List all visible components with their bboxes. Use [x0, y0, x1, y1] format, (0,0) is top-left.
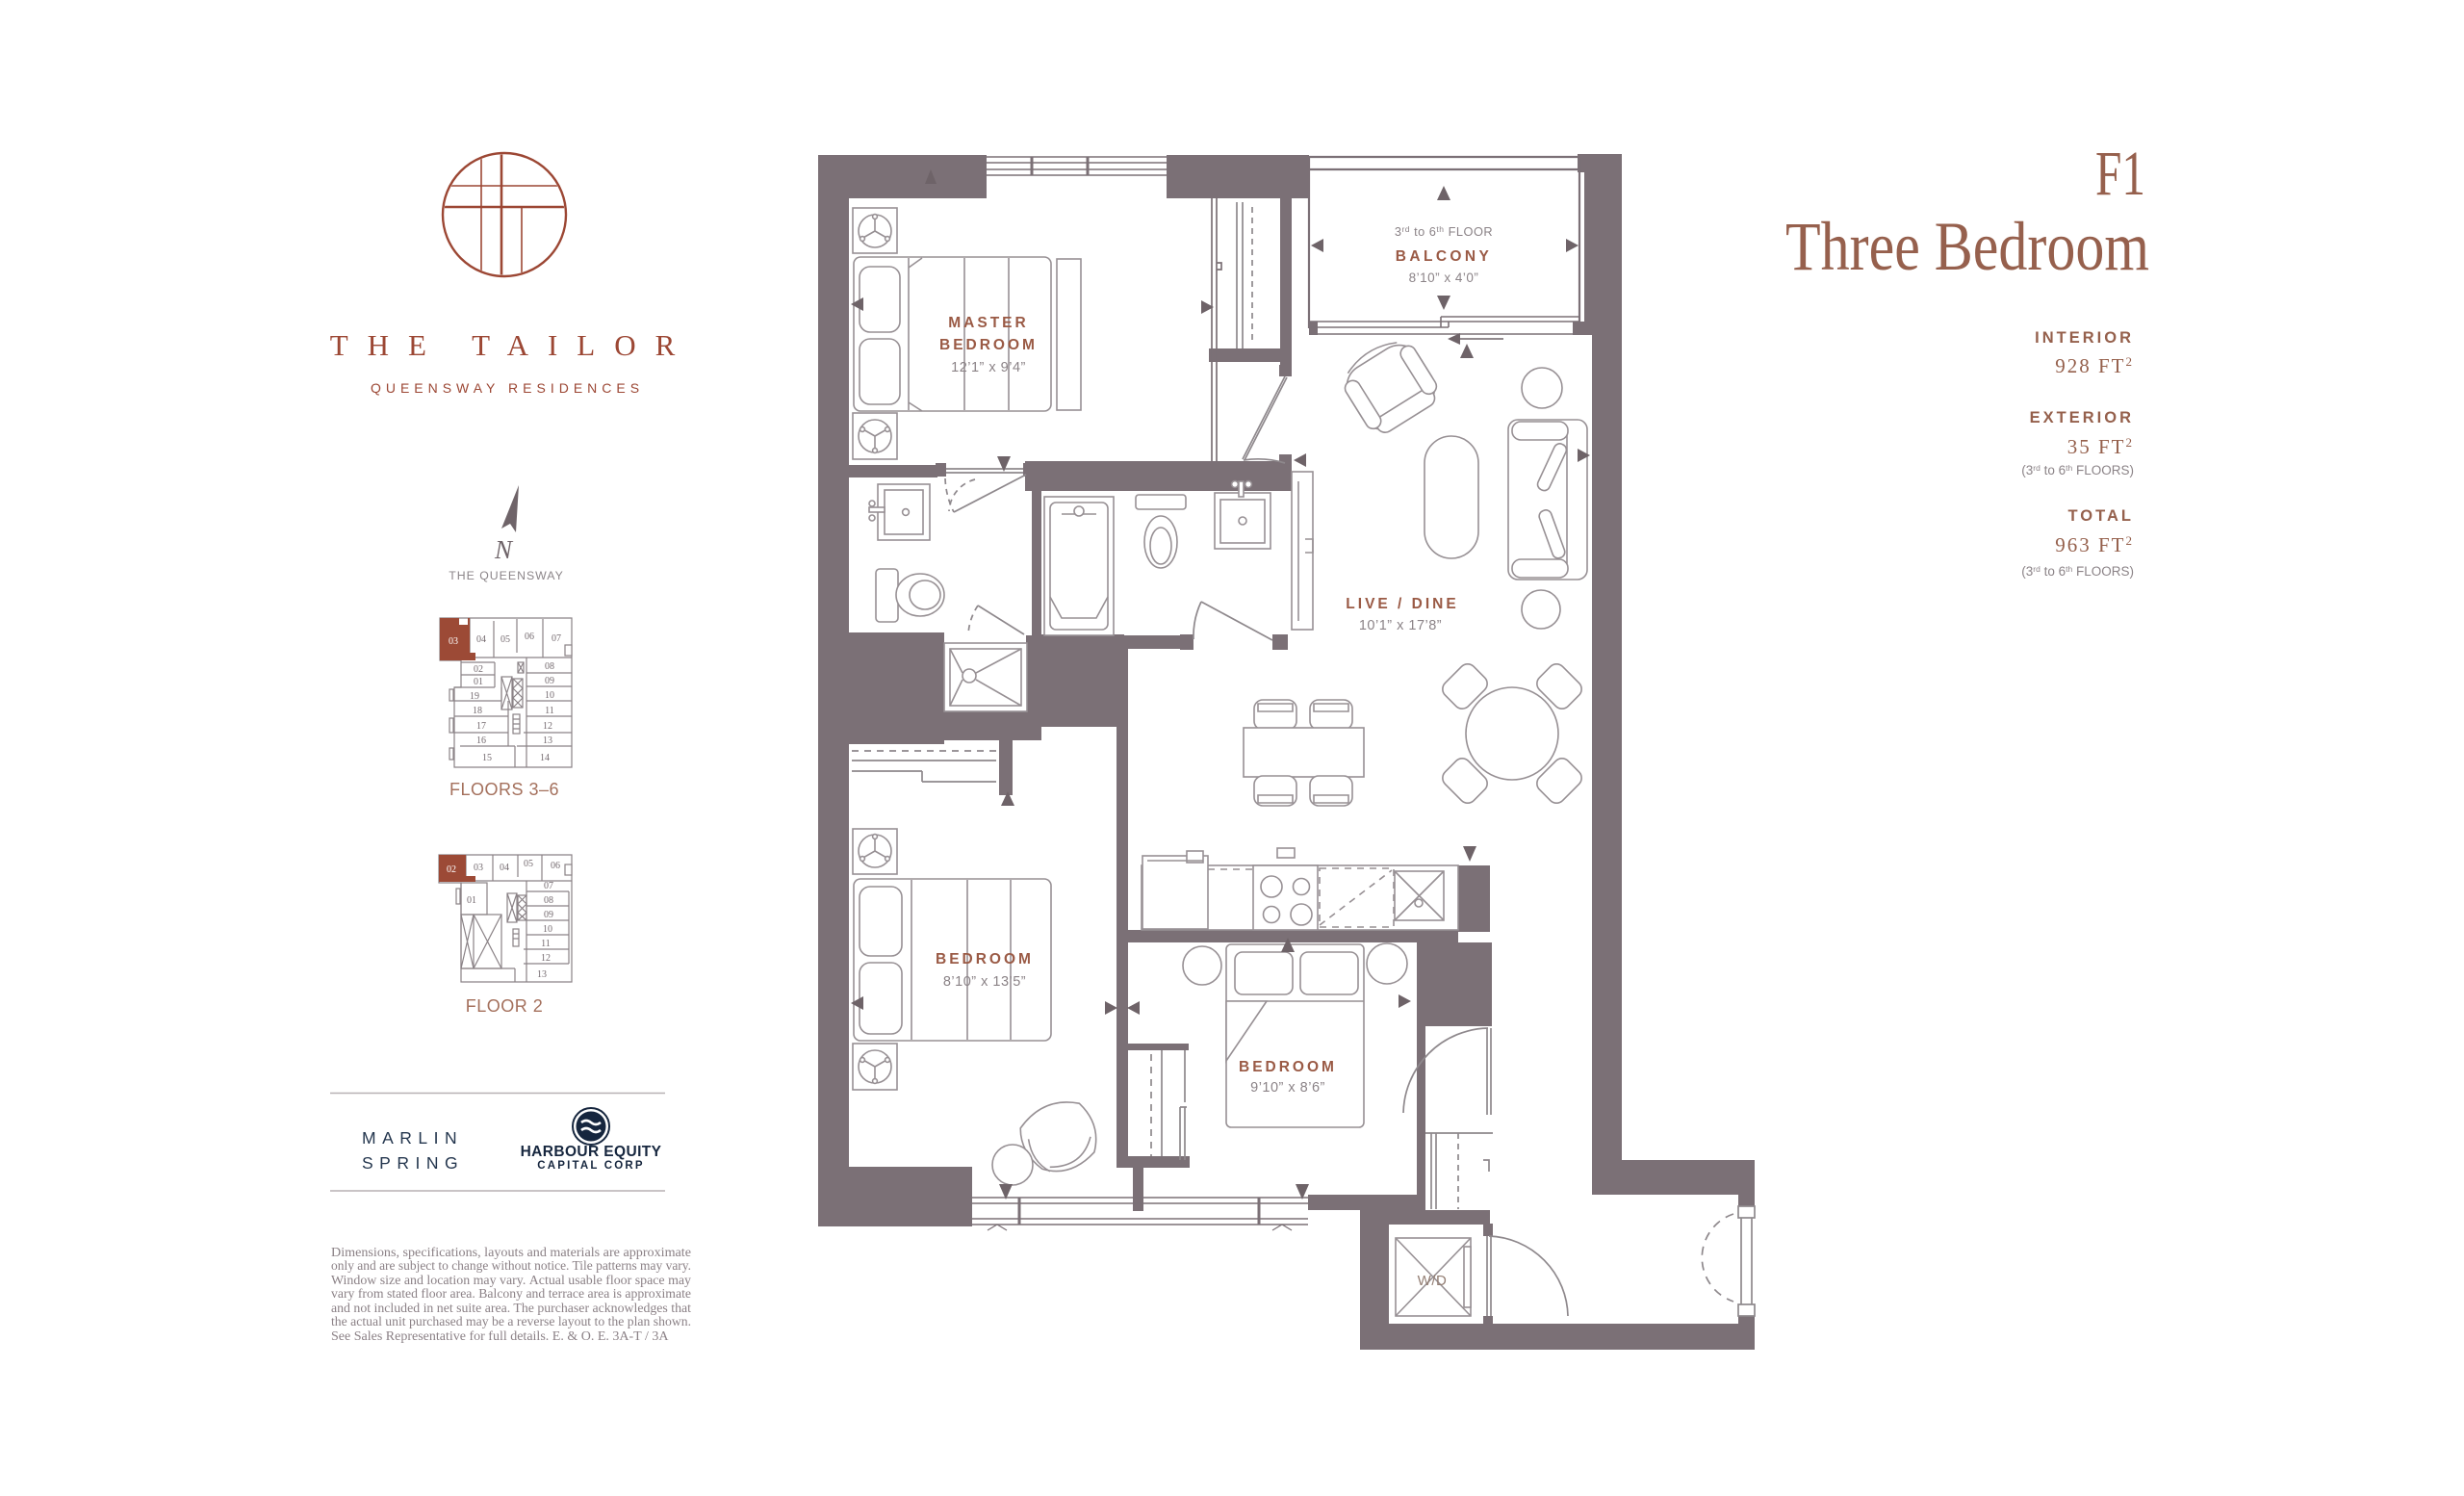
svg-text:INTERIOR: INTERIOR	[2035, 329, 2134, 347]
svg-text:963 FT2: 963 FT2	[2055, 533, 2134, 556]
svg-text:MASTER: MASTER	[948, 315, 1028, 331]
svg-text:04: 04	[500, 863, 509, 873]
svg-text:06: 06	[551, 861, 560, 871]
svg-text:11: 11	[545, 706, 554, 716]
svg-text:07: 07	[544, 881, 553, 891]
svg-text:12: 12	[543, 721, 552, 732]
svg-text:BALCONY: BALCONY	[1396, 248, 1492, 265]
svg-text:(3rd to 6th FLOORS): (3rd to 6th FLOORS)	[2021, 564, 2134, 579]
svg-text:See Sales Representative for f: See Sales Representative for full detail…	[331, 1329, 669, 1344]
svg-text:BEDROOM: BEDROOM	[1239, 1059, 1337, 1075]
svg-text:Window size and location may v: Window size and location may vary. Actua…	[331, 1274, 691, 1288]
svg-text:07: 07	[552, 633, 561, 644]
svg-text:THE QUEENSWAY: THE QUEENSWAY	[449, 569, 564, 582]
svg-text:TOTAL: TOTAL	[2068, 507, 2134, 525]
svg-text:35 FT2: 35 FT2	[2067, 435, 2134, 458]
svg-text:16: 16	[476, 735, 486, 746]
svg-text:12: 12	[541, 953, 551, 964]
svg-text:05: 05	[500, 634, 510, 645]
svg-text:F1: F1	[2095, 139, 2145, 209]
svg-text:15: 15	[482, 753, 492, 763]
svg-text:01: 01	[474, 677, 483, 687]
svg-text:BEDROOM: BEDROOM	[936, 951, 1034, 967]
svg-text:02: 02	[447, 864, 456, 875]
svg-text:BEDROOM: BEDROOM	[939, 337, 1038, 353]
svg-text:only and are subject to change: only and are subject to change without n…	[331, 1259, 691, 1274]
svg-text:08: 08	[544, 895, 553, 906]
svg-text:THE TAILOR: THE TAILOR	[330, 328, 695, 362]
svg-text:01: 01	[467, 895, 476, 906]
svg-text:8’10” x 4’0”: 8’10” x 4’0”	[1409, 271, 1479, 285]
svg-text:FLOORS 3–6: FLOORS 3–6	[449, 780, 559, 799]
svg-text:03: 03	[474, 863, 483, 873]
svg-text:03: 03	[449, 636, 458, 647]
svg-text:MARLIN: MARLIN	[362, 1128, 463, 1148]
svg-text:19: 19	[470, 691, 479, 702]
svg-text:9’10” x 8’6”: 9’10” x 8’6”	[1250, 1080, 1325, 1096]
svg-text:09: 09	[545, 676, 554, 686]
svg-text:N: N	[494, 535, 514, 564]
svg-text:18: 18	[473, 706, 482, 716]
svg-text:Three Bedroom: Three Bedroom	[1785, 208, 2149, 285]
svg-text:04: 04	[476, 634, 486, 645]
svg-text:08: 08	[545, 661, 554, 672]
svg-text:8’10” x 13’5”: 8’10” x 13’5”	[943, 974, 1026, 990]
svg-text:HARBOUR EQUITY: HARBOUR EQUITY	[521, 1144, 662, 1160]
svg-text:928 FT2: 928 FT2	[2055, 354, 2134, 377]
svg-text:10: 10	[543, 924, 552, 935]
svg-text:13: 13	[543, 735, 552, 746]
svg-text:EXTERIOR: EXTERIOR	[2030, 409, 2134, 426]
svg-text:05: 05	[524, 859, 533, 869]
svg-text:vary from stated floor area. B: vary from stated floor area. Balcony and…	[331, 1287, 691, 1302]
svg-text:SPRING: SPRING	[362, 1153, 464, 1173]
svg-text:FLOOR 2: FLOOR 2	[466, 996, 544, 1016]
svg-text:CAPITAL CORP: CAPITAL CORP	[537, 1160, 645, 1172]
svg-text:W/D: W/D	[1418, 1273, 1448, 1289]
svg-text:QUEENSWAY RESIDENCES: QUEENSWAY RESIDENCES	[371, 380, 644, 396]
svg-text:LIVE / DINE: LIVE / DINE	[1346, 596, 1458, 612]
svg-text:17: 17	[476, 721, 486, 732]
svg-text:09: 09	[544, 910, 553, 920]
svg-text:11: 11	[541, 939, 551, 949]
svg-text:the actual unit purchased may: the actual unit purchased may be a rever…	[331, 1315, 691, 1329]
svg-text:10: 10	[545, 690, 554, 701]
svg-text:02: 02	[474, 664, 483, 675]
svg-text:and not included in net suite: and not included in net suite area. The …	[331, 1302, 691, 1316]
svg-text:Dimensions, specifications, la: Dimensions, specifications, layouts and …	[331, 1246, 691, 1260]
svg-text:(3rd to 6th FLOORS): (3rd to 6th FLOORS)	[2021, 463, 2134, 477]
svg-text:13: 13	[537, 969, 547, 980]
svg-text:12’1” x 9’4”: 12’1” x 9’4”	[951, 360, 1026, 375]
svg-text:14: 14	[540, 753, 550, 763]
svg-text:10’1” x 17’8”: 10’1” x 17’8”	[1359, 618, 1442, 633]
svg-text:3rd to 6th FLOOR: 3rd to 6th FLOOR	[1395, 224, 1493, 239]
svg-text:06: 06	[525, 632, 534, 642]
